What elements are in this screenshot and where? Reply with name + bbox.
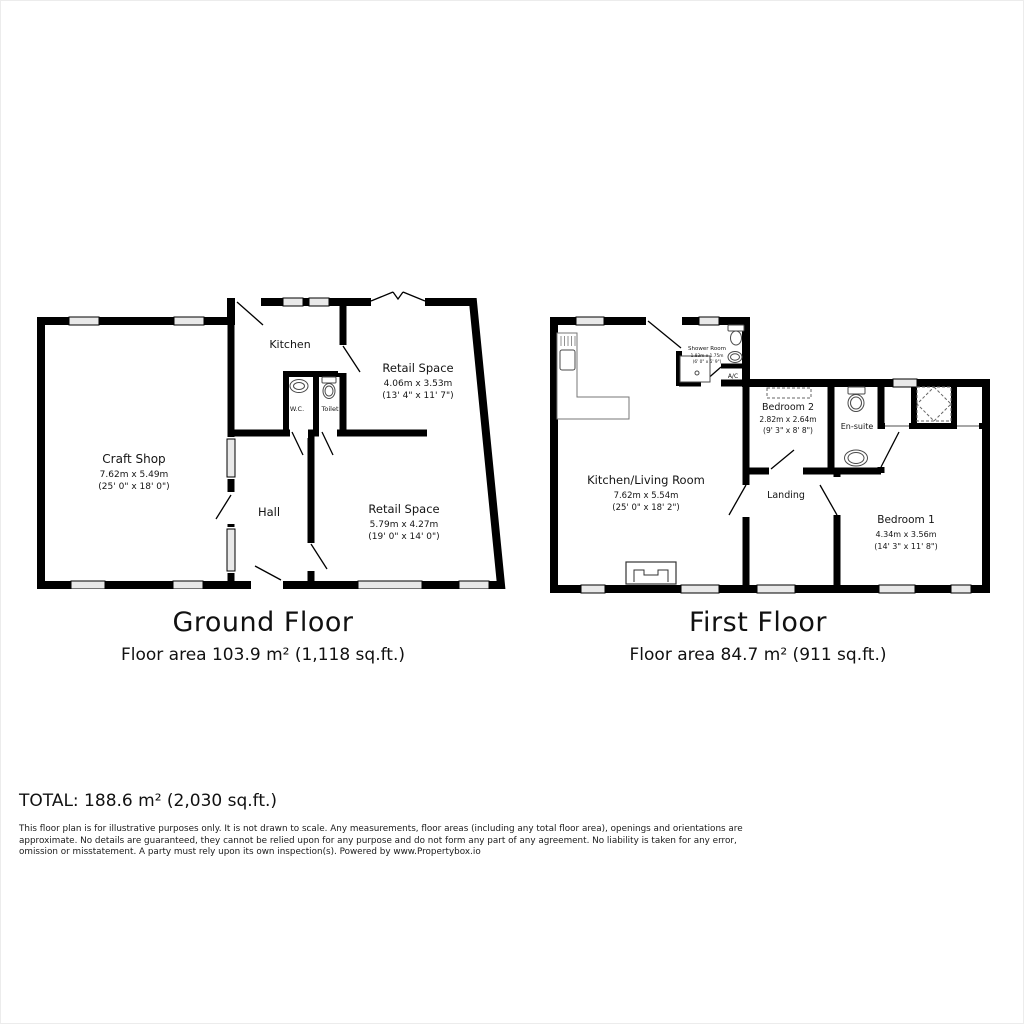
craft-shop-dim-ft: (25' 0" x 18' 0") — [98, 482, 169, 492]
disclaimer-text: This floor plan is for illustrative purp… — [19, 824, 767, 859]
bedroom2-dim-ft: (9' 3" x 8' 8") — [763, 426, 813, 435]
bedroom1-label: Bedroom 1 — [877, 514, 935, 526]
shower-toilet-icon — [728, 325, 744, 345]
ground-interior-walls — [231, 302, 427, 585]
bedroom1-dim-ft: (14' 3" x 11' 8") — [874, 542, 937, 551]
craft-shop-dim-m: 7.62m x 5.49m — [100, 470, 169, 480]
ground-floor-drawing: Kitchen W.C. Toilet Retail Space 4.06m x… — [33, 289, 513, 589]
ground-openings — [227, 297, 425, 589]
ground-floor-plan: Kitchen W.C. Toilet Retail Space 4.06m x… — [33, 289, 513, 589]
first-windows — [576, 317, 971, 593]
first-floor-title: First Floor — [558, 607, 958, 638]
shower-room-label: Shower Room — [688, 346, 726, 352]
bedroom2-dim-m: 2.82m x 2.64m — [759, 415, 816, 424]
ac-label: A/C — [728, 373, 738, 380]
ensuite-label: En-suite — [841, 422, 874, 431]
ensuite-toilet-icon — [848, 387, 865, 412]
bedroom1-dim-m: 4.34m x 3.56m — [875, 530, 936, 539]
wc-sink-icon — [290, 380, 308, 393]
retail-upper-label: Retail Space — [382, 361, 453, 375]
first-floor-drawing: Kitchen/Living Room 7.62m x 5.54m (25' 0… — [549, 311, 994, 596]
rooflight-dashed-icon — [917, 387, 951, 421]
ground-floor-area: Floor area 103.9 m² (1,118 sq.ft.) — [63, 645, 463, 665]
retail-upper-dim-m: 4.06m x 3.53m — [384, 379, 453, 389]
ensuite-sink-icon — [845, 450, 868, 466]
shower-room-dim-m: 1.83m x 1.75m — [691, 353, 724, 359]
ground-floor-caption: Ground Floor Floor area 103.9 m² (1,118 … — [63, 607, 463, 665]
kitchen-living-dim-ft: (25' 0" x 18' 2") — [612, 503, 679, 513]
retail-upper-dim-ft: (13' 4" x 11' 7") — [382, 391, 453, 401]
fireplace-icon — [626, 562, 676, 584]
retail-lower-dim-m: 5.79m x 4.27m — [370, 520, 439, 530]
craft-shop-label: Craft Shop — [102, 452, 165, 466]
toilet-label: Toilet — [320, 405, 338, 413]
total-area-text: TOTAL: 188.6 m² (2,030 sq.ft.) — [19, 791, 277, 811]
wc-label: W.C. — [290, 405, 304, 413]
shower-room-dim-ft: (6' 0" x 5' 9") — [693, 359, 722, 365]
first-floor-caption: First Floor Floor area 84.7 m² (911 sq.f… — [558, 607, 958, 665]
kitchen-counter-icon — [557, 333, 629, 419]
retail-lower-label: Retail Space — [368, 502, 439, 516]
hall-label: Hall — [258, 505, 280, 519]
kitchen-living-label: Kitchen/Living Room — [587, 473, 705, 487]
retail-lower-dim-ft: (19' 0" x 14' 0") — [368, 532, 439, 542]
bedroom2-hatch-dashed — [767, 388, 811, 398]
first-floor-plan: Kitchen/Living Room 7.62m x 5.54m (25' 0… — [549, 311, 994, 596]
landing-label: Landing — [767, 490, 805, 501]
kitchen-label: Kitchen — [269, 338, 310, 351]
first-floor-area: Floor area 84.7 m² (911 sq.ft.) — [558, 645, 958, 665]
bedroom2-label: Bedroom 2 — [762, 402, 814, 413]
toilet-icon — [322, 377, 336, 399]
floorplan-page: Kitchen W.C. Toilet Retail Space 4.06m x… — [0, 0, 1024, 1024]
shower-sink-icon — [728, 352, 742, 363]
kitchen-living-dim-m: 7.62m x 5.54m — [614, 491, 679, 501]
ground-floor-title: Ground Floor — [63, 607, 463, 638]
